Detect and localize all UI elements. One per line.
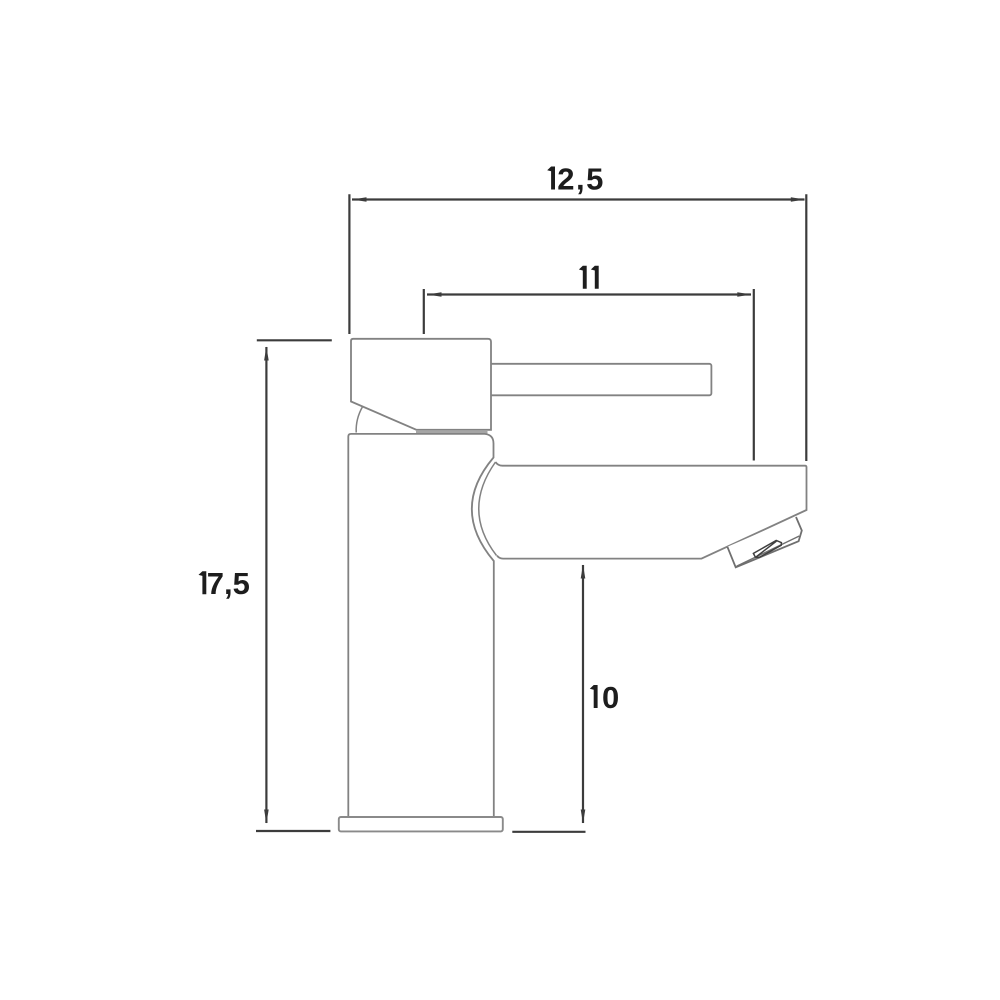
- svg-text:7,5: 7,5: [207, 566, 250, 601]
- svg-text:2,5: 2,5: [557, 162, 605, 197]
- svg-text:0: 0: [602, 680, 619, 715]
